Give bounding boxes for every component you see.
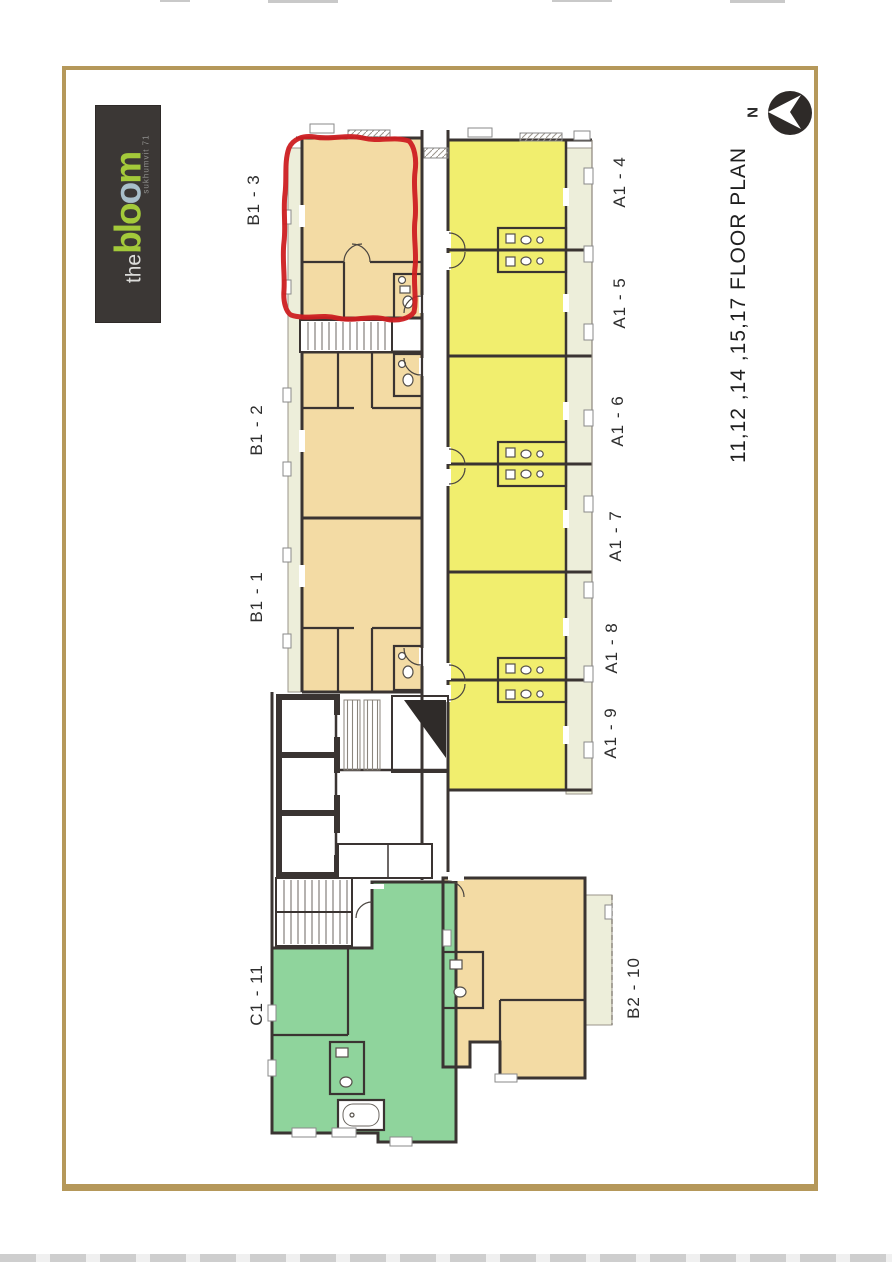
unit-label-c1-11: C1 - 11 bbox=[247, 964, 267, 1026]
floor-plan-drawing bbox=[0, 0, 892, 1262]
unit-b2-10-area bbox=[443, 878, 585, 1078]
unit-label-b1-1: B1 - 1 bbox=[247, 571, 267, 622]
unit-label-a1-8: A1 - 8 bbox=[602, 622, 622, 673]
north-label: N bbox=[745, 106, 762, 118]
unit-label-b2-10: B2 - 10 bbox=[624, 957, 644, 1019]
unit-label-a1-7: A1 - 7 bbox=[606, 510, 626, 561]
unit-a1-7-area bbox=[448, 464, 566, 572]
unit-label-b1-3: B1 - 3 bbox=[244, 174, 264, 225]
shaft-dark bbox=[404, 700, 446, 758]
elevator-1 bbox=[282, 700, 334, 752]
unit-label-b1-2: B1 - 2 bbox=[247, 404, 267, 455]
unit-label-a1-5: A1 - 5 bbox=[610, 277, 630, 328]
elevator-2 bbox=[282, 758, 334, 810]
north-compass bbox=[768, 91, 812, 135]
scanned-floor-plan-page: { "logo": { "prefix": "the", "brand_part… bbox=[0, 0, 892, 1262]
elevator-3 bbox=[282, 816, 334, 872]
unit-label-a1-9: A1 - 9 bbox=[601, 707, 621, 758]
floor-plan-title: 11,12 ,14 ,15,17 FLOOR PLAN bbox=[727, 147, 751, 463]
unit-label-a1-6: A1 - 6 bbox=[608, 395, 628, 446]
unit-label-a1-4: A1 - 4 bbox=[610, 156, 630, 207]
unit-b1-1-area bbox=[302, 518, 422, 692]
unit-fills bbox=[272, 138, 585, 1142]
core-bathroom bbox=[338, 844, 432, 878]
